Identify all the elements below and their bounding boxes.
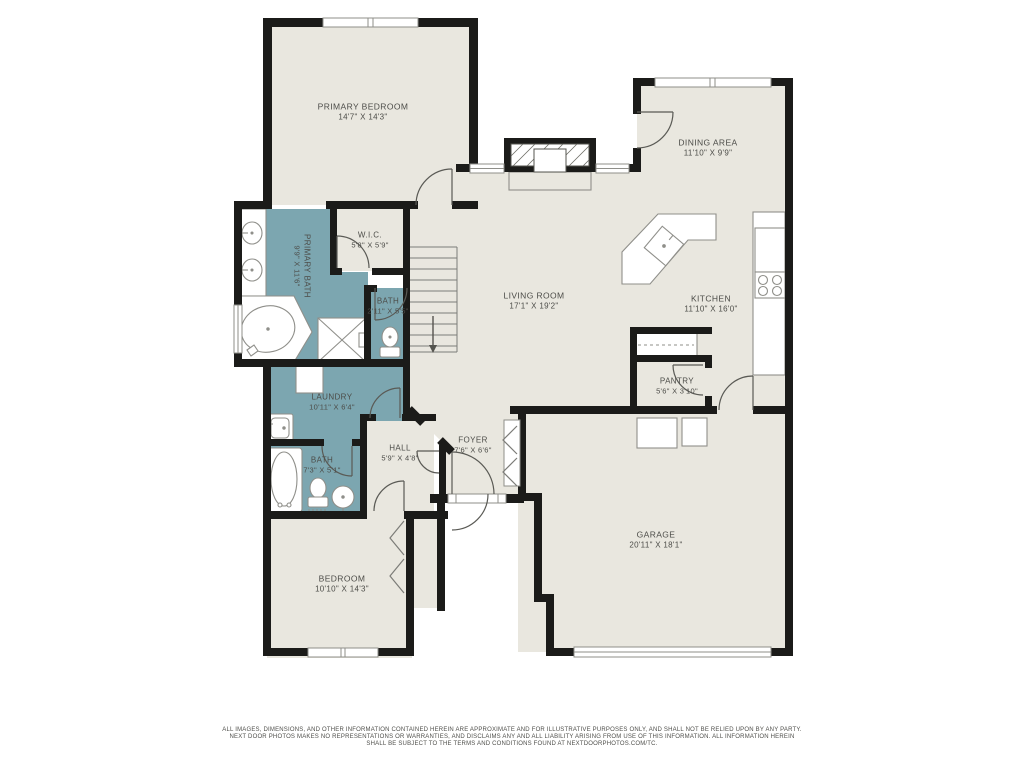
garage-door <box>574 647 771 657</box>
fireplace <box>504 138 596 172</box>
front-door-threshold <box>448 494 506 503</box>
water-heater <box>637 418 677 448</box>
foyer-closet-bifold <box>503 420 520 486</box>
furnace <box>682 418 707 446</box>
toilet-small-bath <box>380 327 400 357</box>
kitchen-counter <box>753 212 785 375</box>
stairs <box>410 247 457 353</box>
window-living-left <box>470 164 504 173</box>
counter-dashed <box>635 333 697 357</box>
disclaimer-text: ALL IMAGES, DIMENSIONS, AND OTHER INFORM… <box>0 727 1024 749</box>
refrigerator <box>755 228 785 272</box>
washer <box>296 366 323 393</box>
window-dining <box>655 78 771 87</box>
toilet-bath <box>308 478 328 510</box>
window-living-right <box>596 164 629 173</box>
shower <box>318 318 366 362</box>
primary-bath-vanity <box>238 209 266 296</box>
floor-plan: PRIMARY BEDROOM14'7" X 14'3" DINING AREA… <box>0 0 1024 768</box>
bathtub <box>267 448 302 512</box>
window-primary-bath <box>234 305 242 353</box>
window-primary-bedroom <box>323 18 418 27</box>
window-bedroom <box>308 648 378 657</box>
floor-plan-svg <box>0 0 1024 768</box>
